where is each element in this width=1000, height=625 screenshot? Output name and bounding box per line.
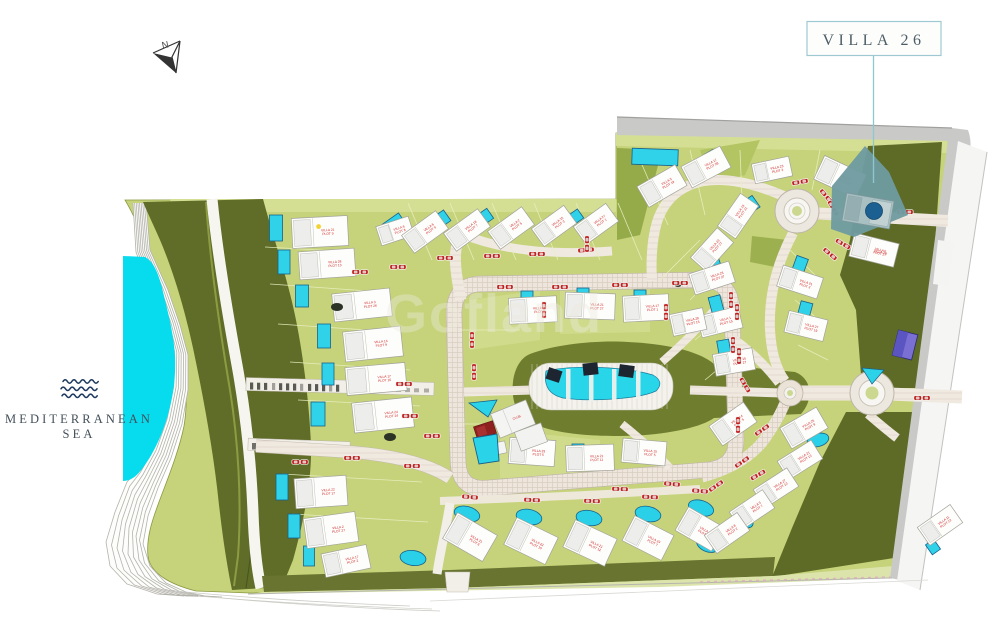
svg-text:PLOT 5: PLOT 5 xyxy=(532,452,544,457)
svg-text:PLOT 9: PLOT 9 xyxy=(322,231,334,236)
svg-text:PLOT 11: PLOT 11 xyxy=(590,458,603,462)
svg-text:MEDITERRANEAN: MEDITERRANEAN xyxy=(5,412,153,426)
svg-text:VILLA 26: VILLA 26 xyxy=(822,32,925,49)
svg-text:SEA: SEA xyxy=(63,427,96,441)
svg-text:PLOT 1: PLOT 1 xyxy=(647,308,659,313)
svg-text:Gofland: Gofland xyxy=(385,284,603,344)
